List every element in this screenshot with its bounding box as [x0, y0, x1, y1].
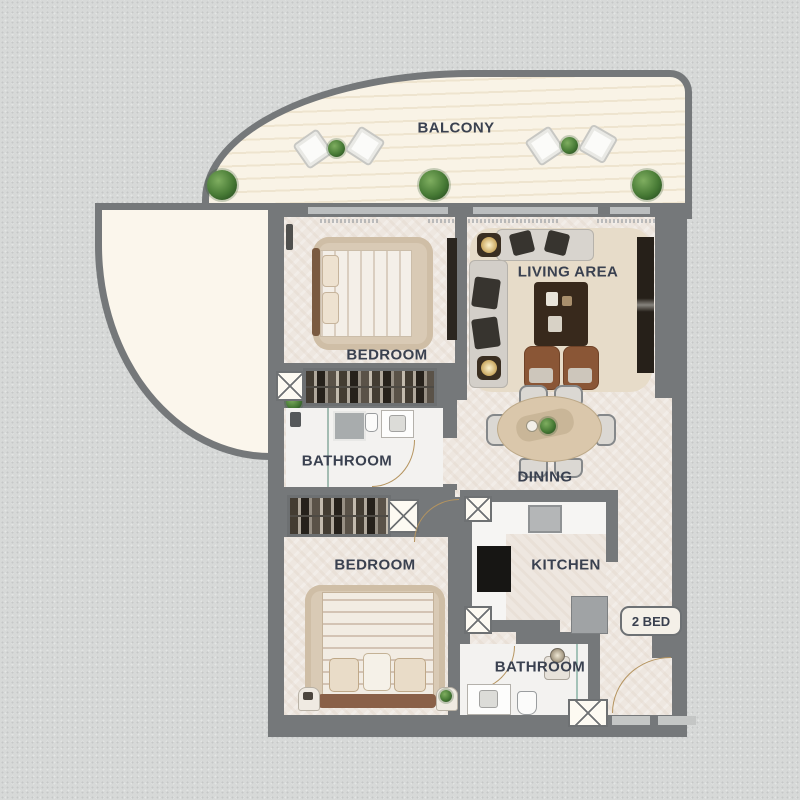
- wall: [652, 636, 672, 658]
- fridge-icon: [571, 596, 608, 634]
- coffee-table-icon: [534, 282, 588, 346]
- unit-type-badge: 2 BED: [620, 606, 682, 636]
- sink-icon: [528, 505, 562, 533]
- wall-fixture-icon: [286, 224, 293, 250]
- plant-icon: [207, 170, 237, 200]
- tv-icon: [637, 237, 654, 373]
- pillow-icon: [329, 658, 359, 692]
- shower-tray-icon: [333, 411, 366, 441]
- balcony-label: BALCONY: [418, 120, 495, 137]
- lamp-icon: [477, 356, 501, 380]
- lamp-icon: [477, 233, 501, 257]
- plant-icon: [419, 170, 449, 200]
- room-balcony: [202, 70, 692, 219]
- table-decor-icon: [548, 316, 562, 332]
- headboard-icon: [318, 694, 436, 708]
- shaft-icon: [464, 496, 492, 522]
- room-terrace: [95, 203, 285, 460]
- bed-icon: [312, 248, 320, 336]
- tv-icon: [447, 238, 457, 340]
- wardrobe: [287, 495, 391, 537]
- dining-label: DINING: [518, 469, 573, 486]
- pillow-icon: [394, 658, 426, 692]
- bathroom2-label: BATHROOM: [495, 659, 585, 676]
- unit-type-badge-label: 2 BED: [632, 614, 670, 629]
- plant-icon: [328, 140, 345, 157]
- sofa-cushion-icon: [471, 316, 501, 349]
- bedroom1-label: BEDROOM: [346, 347, 427, 364]
- pillow-icon: [322, 292, 339, 324]
- threshold: [658, 716, 696, 725]
- plant-icon: [561, 137, 578, 154]
- armchair-cushion-icon: [529, 368, 553, 383]
- sofa-cushion-icon: [471, 276, 501, 309]
- pillow-icon: [322, 255, 339, 287]
- dimension-text: [428, 219, 558, 223]
- threshold: [612, 716, 650, 725]
- wall: [588, 644, 600, 700]
- toilet-icon: [365, 413, 378, 432]
- pillow-icon: [363, 653, 391, 691]
- table-decor-icon: [526, 420, 538, 432]
- toilet-icon: [517, 691, 537, 715]
- plant-icon: [632, 170, 662, 200]
- shaft-icon: [568, 699, 608, 727]
- decor-icon: [303, 692, 313, 700]
- glass-partition: [327, 408, 329, 487]
- wall: [606, 490, 618, 562]
- bathroom1-label: BATHROOM: [302, 453, 392, 470]
- sink-basin-icon: [479, 690, 498, 708]
- window: [308, 207, 448, 214]
- table-decor-icon: [562, 296, 572, 306]
- wall: [443, 363, 457, 438]
- dimension-text: [320, 219, 380, 223]
- armchair-cushion-icon: [568, 368, 592, 383]
- plant-icon: [440, 690, 452, 702]
- shaft-icon: [388, 499, 419, 533]
- table-decor-icon: [546, 292, 558, 306]
- shaft-icon: [276, 371, 304, 401]
- kitchen-label: KITCHEN: [531, 557, 600, 574]
- stove-icon: [477, 546, 511, 592]
- wall: [655, 217, 672, 398]
- floor-plan-canvas: BALCONY BEDROOM: [0, 0, 800, 800]
- wardrobe: [303, 368, 437, 406]
- plant-icon: [540, 418, 556, 434]
- sink-basin-icon: [389, 415, 406, 432]
- living-label: LIVING AREA: [518, 264, 619, 281]
- shaft-icon: [464, 606, 492, 634]
- bedroom2-label: BEDROOM: [334, 557, 415, 574]
- window: [473, 207, 598, 214]
- shower-icon: [290, 412, 301, 427]
- window: [610, 207, 650, 214]
